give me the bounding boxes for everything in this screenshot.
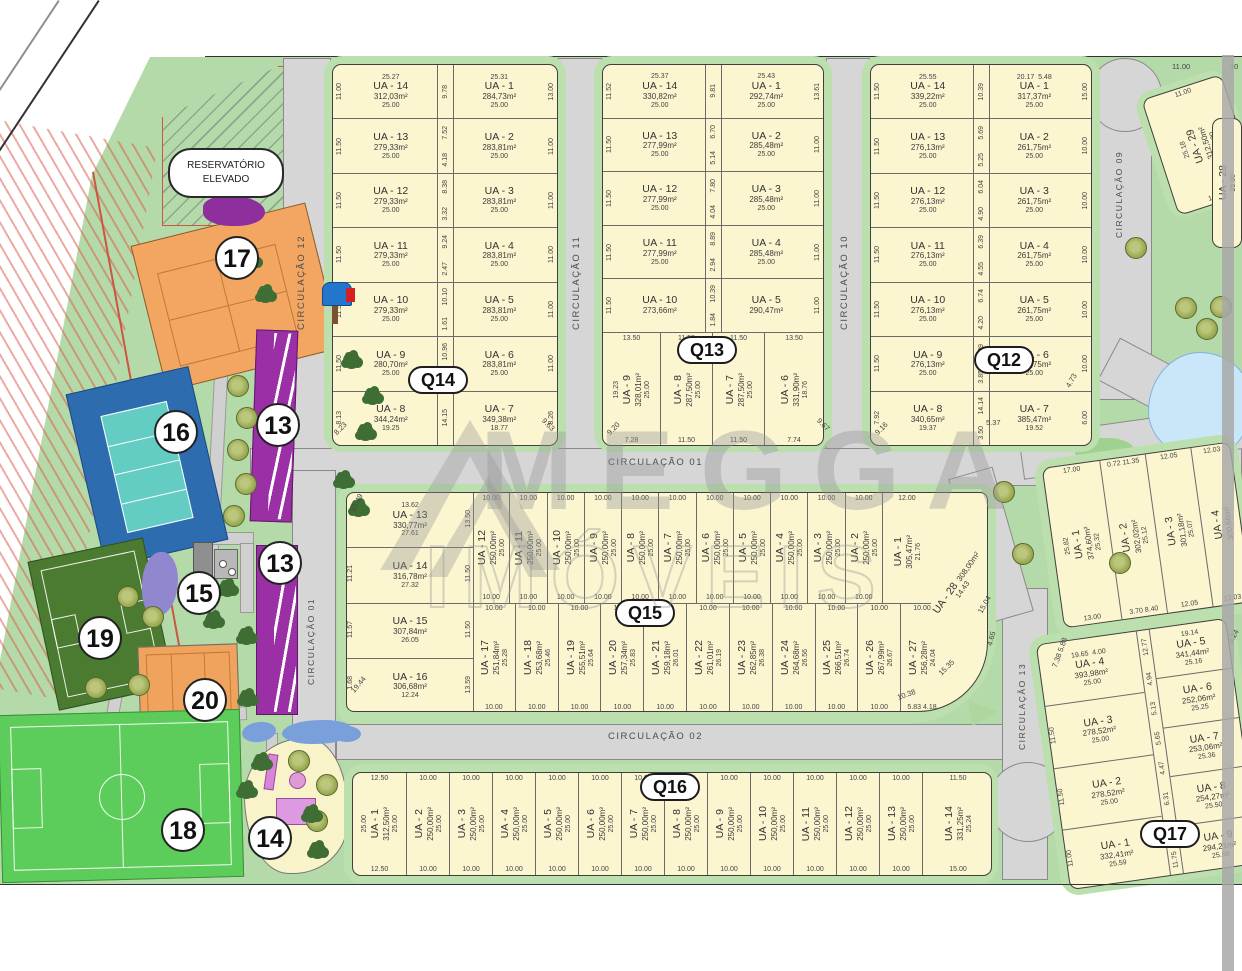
picnic-table-icon <box>228 568 236 576</box>
tree-icon <box>357 424 374 441</box>
tree-icon <box>1196 318 1218 340</box>
quadra-q12: 11.5025.55UA - 14339,22m²25.0010.3920.17… <box>870 64 1092 446</box>
tree-icon <box>85 677 107 699</box>
lot-row: 11.5025.55UA - 14339,22m²25.0010.3920.17… <box>871 65 1091 119</box>
soccer-field-18 <box>0 709 244 883</box>
bottom-boundary-line <box>0 884 1242 885</box>
lot-row: 11.50UA - 11277,99m²25.008.892.94UA - 42… <box>603 226 823 280</box>
tree-icon <box>343 352 360 369</box>
lot-ua3: 10.00UA - 3250,00m²25.0010.00 <box>808 493 845 603</box>
lot-ua4: UA - 4283,81m²25.00 <box>454 228 546 281</box>
lot-ua4: 10.00UA - 4250,00m²25.0010.00 <box>493 773 536 875</box>
road-label-circulacao-13: CIRCULAÇÃO 13 <box>1017 640 1027 750</box>
tree-icon <box>303 806 320 823</box>
lot-ua12: UA - 12276,13m²25.00 <box>883 174 973 227</box>
lot-ua9: UA - 9276,13m²25.00 <box>883 337 973 390</box>
lot-ua25: 10.00UA - 25266,51m²26.7410.00 <box>816 603 859 712</box>
lot-ua28: UA - 28 308,00m² <box>927 547 984 617</box>
marker-13a: 13 <box>256 403 300 447</box>
lot-row: 11.0025.27UA - 14312,03m²25.009.7825.31U… <box>333 65 557 119</box>
road-label-circulacao-01-west: CIRCULAÇÃO 01 <box>306 575 316 685</box>
lot-row: 11.5225.37UA - 14330,82m²25.009.8125.43U… <box>603 65 823 119</box>
lot-ua5: UA - 5290,47m² <box>722 279 812 332</box>
lot-ua7: 10.00UA - 7250,00m²25.0010.00 <box>659 493 696 603</box>
tree-icon <box>227 375 249 397</box>
lot-ua8: UA - 8340,65m²19.37 <box>883 392 973 445</box>
dim-label: 4.47 <box>1158 761 1167 775</box>
lot-row: 11.50UA - 12276,13m²25.006.044.90UA - 32… <box>871 174 1091 228</box>
lot-ua1: 25.31UA - 1284,73m²25.00 <box>454 65 546 118</box>
tree-icon <box>1012 543 1034 565</box>
quadra-label-q15: Q15 <box>615 599 675 627</box>
lot-ua7: UA - 7385,47m²19.52 <box>990 392 1080 445</box>
lot-ua13: UA - 13277,99m²25.00 <box>615 119 705 172</box>
marker-19: 19 <box>78 616 122 660</box>
reservoir-label-line2: ELEVADO <box>170 173 282 187</box>
road-circulacao-02 <box>336 724 1012 760</box>
lot-ua24: 10.00UA - 24264,68m²26.5610.00 <box>773 603 816 712</box>
marker-18: 18 <box>161 808 205 852</box>
tree-icon <box>1125 237 1147 259</box>
lot-ua10: 10.00UA - 10250,00m²25.0010.00 <box>548 493 585 603</box>
road-label-circulacao-10: CIRCULAÇÃO 10 <box>839 215 850 330</box>
quadra-q17: 19.65 4.00UA - 4393,98m²25.0011.50UA - 3… <box>1036 618 1242 890</box>
site-plan: RESERVATÓRIO ELEVADO <box>0 0 1242 971</box>
lot-ua5: 10.00UA - 5250,00m²25.0010.00 <box>536 773 579 875</box>
marker-17: 17 <box>215 236 259 280</box>
lot-ua2: 10.00UA - 2250,00m²25.0010.00 <box>846 493 883 603</box>
lot-ua3: UA - 3261,75m²25.00 <box>990 174 1080 227</box>
lot-ua15: 11.5711.50UA - 15307,84m²26.05 <box>347 604 473 659</box>
quadra-q13: 11.5225.37UA - 14330,82m²25.009.8125.43U… <box>602 64 824 446</box>
lot-ua12: 10.00UA - 12250,00m²25.0010.00 <box>837 773 880 875</box>
dim-label: 11.00 <box>1172 62 1190 71</box>
marker-16: 16 <box>154 410 198 454</box>
lot-ua14: 11.50UA - 14331,25m²25.2415.00 <box>923 773 992 875</box>
quadra-label-q14: Q14 <box>408 366 468 394</box>
lot-row: 11.50UA - 12277,99m²25.007.804.04UA - 32… <box>603 172 823 226</box>
tree-icon <box>335 472 352 489</box>
tree-icon <box>238 628 255 645</box>
picnic-table-icon <box>219 560 227 568</box>
tree-icon <box>1109 552 1131 574</box>
dim-label: 5.37 <box>986 418 1001 427</box>
lot-ua2: 10.00UA - 2250,00m²25.0010.00 <box>407 773 450 875</box>
lot-ua1: 20.17 5.48UA - 1317,37m²25.00 <box>990 65 1080 118</box>
lot-ua13: UA - 13279,33m²25.00 <box>345 119 437 172</box>
lot-ua2: UA - 2283,81m²25.00 <box>454 119 546 172</box>
tree-icon <box>117 586 139 608</box>
lot-ua11: UA - 11279,33m²25.00 <box>345 228 437 281</box>
dim-label: 12.77 <box>1140 638 1149 656</box>
tree-icon <box>1175 297 1197 319</box>
lot-ua16: 1.6813.59UA - 16306,68m²12.24 <box>347 659 473 712</box>
lot-ua2: UA - 2261,75m²25.00 <box>990 119 1080 172</box>
tree-icon <box>288 750 310 772</box>
lot-ua3: 10.00UA - 3250,00m²25.0010.00 <box>450 773 493 875</box>
lot-ua5: UA - 5283,81m²25.00 <box>454 283 546 336</box>
tree-icon <box>235 473 257 495</box>
lot-ua2: UA - 2285,48m²25.00 <box>722 119 812 172</box>
lot-ua10: 10.00UA - 10250,00m²25.0010.00 <box>751 773 794 875</box>
lot-ua4: 10.00UA - 4250,00m²25.0010.00 <box>771 493 808 603</box>
tree-icon <box>309 842 326 859</box>
quadra-label-q17: Q17 <box>1140 820 1200 848</box>
water-blob <box>333 726 361 742</box>
lot-row: 11.50UA - 13279,33m²25.007.524.18UA - 22… <box>333 119 557 173</box>
tree-icon <box>128 674 150 696</box>
lot-ua13: UA - 13276,13m²25.00 <box>883 119 973 172</box>
lot-ua14: 25.27UA - 14312,03m²25.00 <box>345 65 437 118</box>
right-edge-scrollbar[interactable] <box>1222 55 1234 971</box>
lot-row: 11.50UA - 12279,33m²25.008.383.32UA - 32… <box>333 174 557 228</box>
walkway <box>240 543 254 613</box>
lot-row: 11.50UA - 10273,66m²10.391.84UA - 5290,4… <box>603 279 823 332</box>
lot-ua23: 10.00UA - 23262,85m²26.3810.00 <box>730 603 773 712</box>
lot-ua6: 10.00UA - 6250,00m²25.0010.00 <box>697 493 734 603</box>
dim-label: 11.75 <box>1170 851 1179 869</box>
lot-ua17: 10.00UA - 17251,84m²25.2810.00 <box>473 603 516 712</box>
road-label-circulacao-11: CIRCULAÇÃO 11 <box>571 215 582 330</box>
lot-ua5: 10.00UA - 5250,00m²25.0010.00 <box>734 493 771 603</box>
reservoir-label: RESERVATÓRIO ELEVADO <box>168 148 284 198</box>
lot-row: 11.50UA - 11279,33m²25.009.242.47UA - 42… <box>333 228 557 282</box>
reservoir-label-line1: RESERVATÓRIO <box>170 159 282 173</box>
lot-ua11: UA - 11277,99m²25.00 <box>615 226 705 279</box>
lot-ua3: UA - 3283,81m²25.00 <box>454 174 546 227</box>
lot-row: 11.50UA - 11276,13m²25.006.394.55UA - 42… <box>871 228 1091 282</box>
lot-ua13: 10.00UA - 13250,00m²25.0010.00 <box>880 773 923 875</box>
tree-icon <box>253 754 270 771</box>
lot-ua14: 11.2111.50UA - 14316,78m²27.32 <box>347 548 473 603</box>
dim-label: 4.94 <box>1145 672 1154 686</box>
purple-patch <box>203 196 265 226</box>
lot-ua12: UA - 12279,33m²25.00 <box>345 174 437 227</box>
lot-ua11: 10.00UA - 11250,00m²25.0010.00 <box>794 773 837 875</box>
marker-14: 14 <box>248 816 292 860</box>
road-label-circulacao-09: CIRCULAÇÃO 09 <box>1114 128 1124 238</box>
lot-ua14: 25.37UA - 14330,82m²25.00 <box>615 65 705 118</box>
dim-label: 6.31 <box>1162 791 1171 805</box>
lot-ua19: 10.00UA - 19255,51m²25.6410.00 <box>559 603 602 712</box>
lot-ua9: 10.00UA - 9250,00m²25.0010.00 <box>585 493 622 603</box>
tree-icon <box>223 505 245 527</box>
lot-ua7: UA - 7349,38m²18.77 <box>454 392 546 445</box>
tree-icon <box>205 612 222 629</box>
lot-ua9: 10.00UA - 9250,00m²25.0010.00 <box>708 773 751 875</box>
road-label-circulacao-01: CIRCULAÇÃO 01 <box>608 457 703 468</box>
road-label-circulacao-02: CIRCULAÇÃO 02 <box>608 731 703 742</box>
road-label-circulacao-12: CIRCULAÇÃO 12 <box>296 215 307 330</box>
tree-icon <box>219 580 236 597</box>
lot-row: 7.92UA - 8340,65m²19.3714.143.50UA - 738… <box>871 392 1091 445</box>
lot-ua1: 12.5025.00UA - 1312,50m²25.0012.50 <box>353 773 407 875</box>
marker-13b: 13 <box>258 541 302 585</box>
lot-ua6: 13.50UA - 6331,90m²18.767.74 <box>765 333 823 446</box>
tree-icon <box>257 286 274 303</box>
lot-ua14: 25.55UA - 14339,22m²25.00 <box>883 65 973 118</box>
tree-icon <box>364 388 381 405</box>
tree-icon <box>227 439 249 461</box>
dim-label: 5.65 <box>1154 731 1163 745</box>
marker-20: 20 <box>183 678 227 722</box>
lot-ua5: UA - 5261,75m²25.00 <box>990 283 1080 336</box>
lot-ua11: 10.00UA - 11250,00m²25.0010.00 <box>510 493 547 603</box>
lot-ua1: 25.43UA - 1292,74m²25.00 <box>722 65 812 118</box>
lot-ua6: 10.00UA - 6250,00m²25.0010.00 <box>579 773 622 875</box>
lot-ua10: UA - 10279,33m²25.00 <box>345 283 437 336</box>
tree-icon <box>238 782 255 799</box>
lot-ua13: 13.5013.62UA - 13330,77m²27.61 <box>347 493 473 548</box>
tree-icon <box>236 407 258 429</box>
tree-icon <box>142 606 164 628</box>
lot-ua22: 10.00UA - 22261,01m²26.1910.00 <box>687 603 730 712</box>
lot-row: 11.50UA - 13276,13m²25.005.695.25UA - 22… <box>871 119 1091 173</box>
lot-row: 11.50UA - 10276,13m²25.006.744.20UA - 52… <box>871 283 1091 337</box>
lot-ua18: 10.00UA - 18253,68m²25.4610.00 <box>516 603 559 712</box>
lot-ua10: UA - 10273,66m² <box>615 279 705 332</box>
lot-ua12: 10.00UA - 12250,00m²25.0010.00 <box>473 493 510 603</box>
tree-icon <box>239 690 256 707</box>
quadra-label-q16: Q16 <box>640 773 700 801</box>
quadra-label-q13: Q13 <box>677 336 737 364</box>
tree-icon <box>316 774 338 796</box>
lot-ua10: UA - 10276,13m²25.00 <box>883 283 973 336</box>
lot-ua12: UA - 12277,99m²25.00 <box>615 172 705 225</box>
lot-ua11: UA - 11276,13m²25.00 <box>883 228 973 281</box>
tree-icon <box>993 481 1015 503</box>
lot-ua26: 10.00UA - 26267,99m²26.6710.00 <box>858 603 901 712</box>
lot-ua8: 10.00UA - 8250,00m²25.0010.00 <box>622 493 659 603</box>
lot-ua4: UA - 4285,48m²25.00 <box>722 226 812 279</box>
lot-row: 11.50UA - 10279,33m²25.0010.101.61UA - 5… <box>333 283 557 337</box>
lot-ua4: UA - 4261,75m²25.00 <box>990 228 1080 281</box>
dim-label: 5.13 <box>1149 702 1158 716</box>
playground-equipment <box>289 772 306 789</box>
quadra-right-block: 17.0025.82UA - 1374,60m²25.3213.000.72 1… <box>1042 442 1242 629</box>
marker-15: 15 <box>177 571 221 615</box>
lot-row: 11.50UA - 13277,99m²25.006.705.14UA - 22… <box>603 119 823 173</box>
quadra-label-q12: Q12 <box>974 346 1034 374</box>
lot-ua3: UA - 3285,48m²25.00 <box>722 172 812 225</box>
